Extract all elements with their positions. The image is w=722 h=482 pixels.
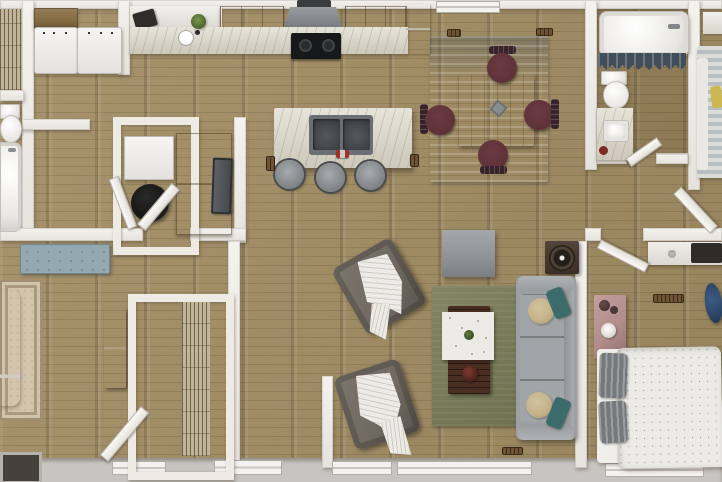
sofa: [516, 276, 576, 440]
bar-stool-3: [356, 161, 385, 190]
laundry-counter: [34, 8, 78, 28]
bedroom3-pillow-2: [598, 400, 628, 443]
bedroom2-yellow-pillow: [710, 85, 722, 108]
bedroom3-navy-chair: [702, 282, 722, 324]
dining-chair-bottom-back: [480, 166, 507, 174]
dining-chair-right-seat: [524, 100, 554, 130]
utility-cabinet: [124, 136, 174, 180]
armchair-2: [326, 348, 431, 460]
kitchen-counter: [130, 27, 408, 54]
tub2-faucet: [668, 24, 680, 29]
coffee-table-deco: [464, 330, 474, 340]
dining-chair-right-back: [551, 99, 559, 129]
window-top: [436, 1, 500, 13]
bedroom2-door: [673, 187, 718, 234]
bedroom3-duvet: [616, 346, 722, 469]
coffee-table-bowl: [462, 366, 478, 382]
coffee-table: [442, 302, 494, 396]
bedroom1-bed: [0, 290, 20, 406]
vent-dining-1: [447, 29, 461, 37]
burner-right: [322, 39, 335, 52]
console-monitor: [211, 158, 233, 215]
toilet1-bowl: [0, 115, 22, 143]
bathtub2: [599, 11, 689, 57]
wall-hall-left: [22, 119, 90, 130]
window-bottom-3: [332, 461, 392, 475]
plant: [191, 14, 206, 29]
bench: [20, 244, 110, 274]
bedroom3-desk-knob: [668, 250, 676, 258]
vent-kitchen-left: [266, 156, 275, 171]
wall-desk-right: [234, 117, 246, 243]
wall-bedroom3-top-a: [585, 228, 601, 241]
washer-controls: [40, 31, 72, 35]
speaker: [549, 245, 575, 271]
vent-bedroom3: [653, 294, 684, 303]
tv-console: [442, 230, 495, 277]
wall-living-right: [575, 241, 587, 468]
dining-chair-top-seat: [487, 53, 517, 83]
tub1-faucet: [8, 148, 16, 152]
armchair-1: [322, 226, 437, 346]
floor-plan: [0, 0, 722, 482]
bar-stool-2: [316, 163, 345, 192]
vanity2-sink: [603, 120, 629, 142]
bedroom2-dresser: [703, 12, 722, 34]
bathtub1: [0, 142, 22, 232]
closet1-box: [128, 294, 234, 480]
bedroom1-dresser: [104, 308, 126, 388]
upper-cabinets-right: [345, 6, 407, 28]
window-bottom-4: [397, 461, 532, 475]
prep-sink-faucet: [195, 30, 200, 35]
upper-cabinets-left: [220, 6, 284, 28]
bedroom3-pillow-1: [598, 353, 628, 399]
vanity2-soap: [599, 146, 608, 155]
dining-chair-left-seat: [425, 105, 455, 135]
wall-dining-bath2: [585, 0, 597, 170]
nightstand-item-2: [610, 306, 618, 314]
wire-shelf-left-closet: [0, 9, 22, 90]
prep-sink: [178, 30, 194, 46]
island-faucet: [336, 150, 349, 158]
sofa-arm-bottom: [518, 424, 574, 440]
burner-left: [299, 39, 312, 52]
bedroom3-door: [597, 239, 650, 272]
island-sink-basin-left: [313, 119, 340, 150]
nightstand-item-1: [599, 300, 610, 311]
toilet2-bowl: [603, 81, 629, 109]
fridge-end-panel: [406, 4, 430, 54]
wall-left-divider: [0, 90, 24, 101]
bedroom2-blanket: [697, 58, 708, 170]
closet1-wire-shelf: [182, 302, 210, 456]
vent-dining-2: [536, 28, 553, 36]
vent-living: [502, 447, 523, 455]
window-dark-bottom-left: [0, 452, 42, 482]
dryer-controls: [84, 31, 116, 35]
bedroom3-desk-monitor: [691, 243, 722, 263]
vent-kitchen-right: [410, 154, 419, 167]
sofa-arm-top: [518, 276, 574, 292]
bar-stool-1: [275, 160, 304, 189]
island-sink-basin-right: [343, 119, 370, 150]
nightstand-lamp: [601, 323, 616, 338]
